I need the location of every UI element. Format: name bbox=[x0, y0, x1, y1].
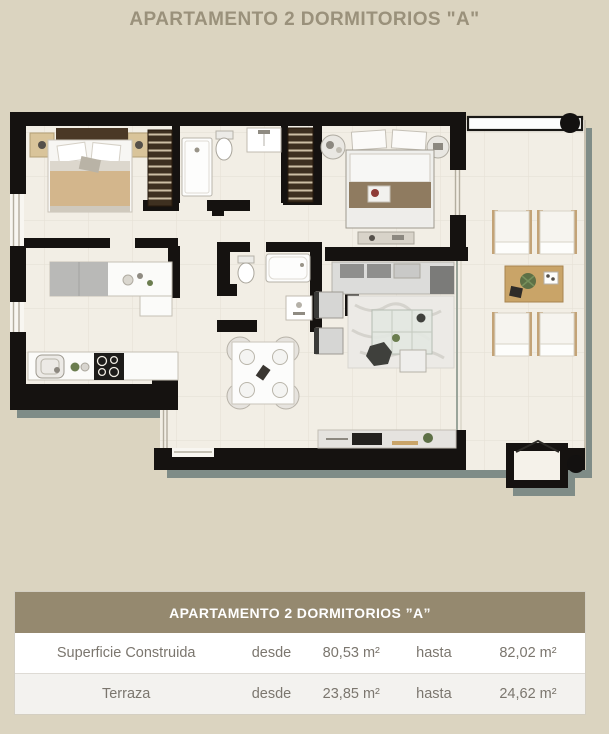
wardrobe-2 bbox=[288, 128, 313, 202]
terrace-railing bbox=[468, 113, 582, 133]
to-value: 82,02 m² bbox=[471, 645, 585, 661]
floor-plan bbox=[0, 0, 609, 560]
sink-counter bbox=[247, 128, 281, 152]
table-row: Superficie Construida desde 80,53 m² has… bbox=[15, 633, 585, 673]
armchair bbox=[314, 292, 343, 318]
to-value: 24,62 m² bbox=[471, 686, 585, 702]
tv bbox=[352, 433, 382, 445]
armchair bbox=[314, 328, 343, 354]
bed-double bbox=[346, 150, 434, 228]
wardrobe bbox=[148, 130, 172, 206]
from-label: desde bbox=[237, 645, 305, 661]
table-header: APARTAMENTO 2 DORMITORIOS ”A” bbox=[15, 592, 585, 633]
lounge-chair bbox=[492, 210, 532, 254]
row-label: Terraza bbox=[15, 686, 237, 702]
row-label: Superficie Construida bbox=[15, 645, 237, 661]
shower bbox=[182, 138, 212, 196]
plant bbox=[423, 433, 433, 443]
foot-bench bbox=[358, 232, 414, 244]
side-table bbox=[400, 350, 426, 372]
corner-module bbox=[430, 266, 454, 294]
floor-plan-drawing bbox=[0, 0, 609, 560]
toilet bbox=[216, 131, 233, 160]
tv-console bbox=[318, 430, 456, 448]
kitchen-sink bbox=[36, 355, 64, 378]
lounge-chair bbox=[537, 210, 577, 254]
to-label: hasta bbox=[397, 645, 471, 661]
lounge-chair bbox=[492, 312, 532, 356]
from-label: desde bbox=[237, 686, 305, 702]
from-value: 80,53 m² bbox=[306, 645, 397, 661]
lounge-chair bbox=[537, 312, 577, 356]
summary-table: APARTAMENTO 2 DORMITORIOS ”A” Superficie… bbox=[15, 592, 585, 714]
apartment-floorplan-page: { "page": { "title": "APARTAMENTO 2 DORM… bbox=[0, 0, 609, 734]
bedroom-1 bbox=[30, 128, 172, 212]
dining-area bbox=[227, 337, 299, 409]
sofa bbox=[332, 262, 454, 294]
table-row: Terraza desde 23,85 m² hasta 24,62 m² bbox=[15, 673, 585, 714]
to-label: hasta bbox=[397, 686, 471, 702]
hob bbox=[94, 353, 124, 380]
counter-sink-hob bbox=[28, 352, 178, 380]
bed-double bbox=[48, 140, 132, 212]
terrace-table bbox=[505, 266, 563, 302]
from-value: 23,85 m² bbox=[306, 686, 397, 702]
toilet bbox=[238, 256, 254, 283]
sink bbox=[286, 296, 312, 320]
bathtub bbox=[266, 254, 310, 282]
